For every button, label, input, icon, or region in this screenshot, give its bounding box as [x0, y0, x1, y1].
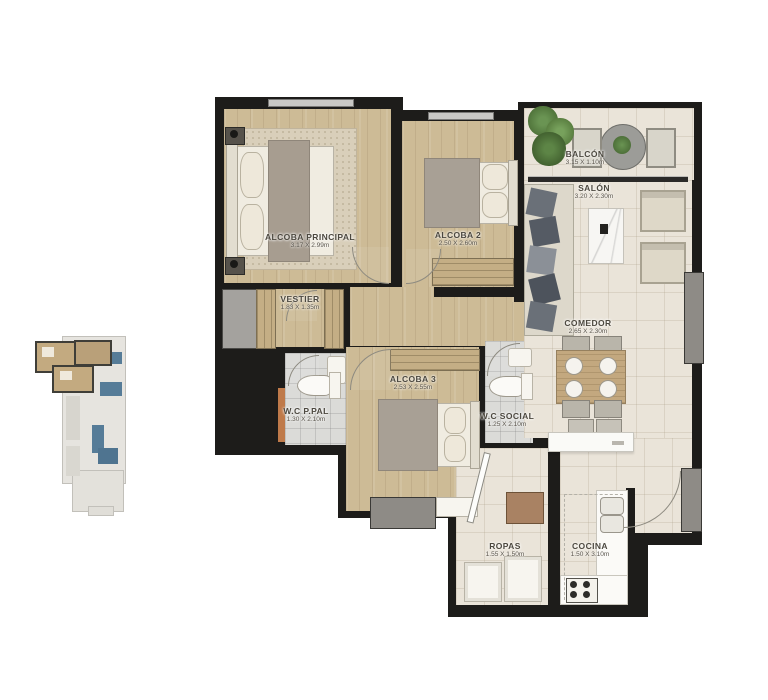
room-label-salon: SALÓN 3.20 X 2.30m: [575, 183, 614, 201]
wardrobe-alcoba-3: [370, 497, 436, 529]
sofa-cushion: [529, 216, 560, 247]
room-label-alcoba-3: ALCOBA 3 2.53 X 2.55m: [390, 374, 436, 392]
toilet-tank: [329, 372, 341, 399]
bed-3-blanket: [378, 399, 438, 471]
room-label-balcon: BALCÓN 3.15 X 1.10m: [566, 149, 605, 167]
room-name: SALÓN: [578, 183, 610, 193]
sofa-cushion: [525, 187, 557, 219]
plate: [599, 380, 617, 398]
closet-vestier-right: [324, 289, 344, 349]
room-name: W.C P.PAL: [283, 406, 328, 416]
pillow: [482, 164, 508, 190]
ropas-shelf: [506, 492, 544, 524]
bed-2-blanket: [424, 158, 480, 228]
room-dims: 1.55 X 1.50m: [486, 551, 525, 559]
pillow: [240, 204, 264, 250]
wall-alcoba2-bottom: [434, 287, 514, 297]
room-label-alcoba-principal: ALCOBA PRINCIPAL 3.17 X 2.99m: [265, 232, 355, 250]
pillow: [482, 192, 508, 218]
stove-burner: [570, 581, 577, 588]
bed-principal-headboard: [226, 144, 238, 258]
room-name: COCINA: [572, 541, 608, 551]
floor-duct: [222, 289, 258, 349]
dryer: [504, 556, 542, 602]
closet-alcoba-2: [432, 258, 514, 286]
pillow: [240, 152, 264, 198]
main-floor-plan: ALCOBA PRINCIPAL 3.17 X 2.99m ALCOBA 2 2…: [0, 0, 768, 700]
room-dims: 2.65 X 2.30m: [569, 328, 608, 336]
room-dims: 3.17 X 2.99m: [291, 242, 330, 250]
sofa-cushion: [526, 301, 557, 332]
room-dims: 2.53 X 2.55m: [394, 384, 433, 392]
kitchen-sink: [600, 497, 624, 515]
plate: [565, 357, 583, 375]
pillow: [444, 407, 466, 434]
stove-burner: [583, 591, 590, 598]
plate: [599, 357, 617, 375]
bed-3-headboard: [470, 401, 480, 469]
room-label-alcoba-2: ALCOBA 2 2.50 X 2.60m: [435, 230, 481, 248]
window-alcoba-principal: [268, 99, 354, 107]
entry-door-leaf: [681, 468, 702, 532]
room-name: ALCOBA PRINCIPAL: [265, 232, 355, 242]
room-dims: 1.25 X 2.10m: [488, 421, 527, 429]
breakfast-bar-tag: [612, 441, 624, 445]
room-dims: 3.20 X 2.30m: [575, 193, 614, 201]
bed-2-headboard: [508, 160, 518, 226]
room-name: BALCÓN: [566, 149, 605, 159]
floorplan-page: { "plan": { "title": "apartment-floor-pl…: [0, 0, 768, 700]
room-label-ropas: ROPAS 1.55 X 1.50m: [486, 541, 525, 559]
sofa-cushion: [526, 245, 556, 275]
room-name: W.C SOCIAL: [480, 411, 535, 421]
room-dims: 1.50 X 3.10m: [571, 551, 610, 559]
room-dims: 2.50 X 2.60m: [439, 240, 478, 248]
room-label-wc-principal: W.C P.PAL 1.30 X 2.10m: [283, 406, 328, 424]
dining-table: [556, 350, 626, 404]
room-name: COMEDOR: [564, 318, 611, 328]
room-name: ROPAS: [489, 541, 521, 551]
stove-burner: [583, 581, 590, 588]
toilet-tank: [521, 373, 533, 400]
plant: [532, 132, 566, 166]
dining-chair: [562, 400, 590, 418]
sliding-door-balcon: [528, 176, 688, 182]
room-dims: 1.30 X 2.10m: [287, 416, 326, 424]
stove-burner: [570, 591, 577, 598]
washer: [464, 562, 502, 602]
nightstand-lamp: [230, 260, 238, 268]
room-dims: 3.15 X 1.10m: [566, 159, 605, 167]
plate: [565, 380, 583, 398]
armchair: [640, 190, 686, 232]
room-name: ALCOBA 3: [390, 374, 436, 384]
coffee-table: [588, 208, 624, 264]
kitchen-sink: [600, 515, 624, 533]
armchair: [640, 242, 686, 284]
column-east: [684, 272, 704, 364]
room-name: ALCOBA 2: [435, 230, 481, 240]
room-label-cocina: COCINA 1.50 X 3.10m: [571, 541, 610, 559]
room-name: VESTIER: [280, 294, 319, 304]
room-dims: 1.83 X 1.35m: [281, 304, 320, 312]
balcony-table-plant: [613, 136, 631, 154]
toilet: [489, 376, 523, 397]
balcony-chair: [646, 128, 676, 168]
room-label-vestier: VESTIER 1.83 X 1.35m: [280, 294, 319, 312]
nightstand-lamp: [230, 130, 238, 138]
room-label-comedor: COMEDOR 2.65 X 2.30m: [564, 318, 611, 336]
pillow: [444, 435, 466, 462]
dining-chair: [594, 400, 622, 418]
window-alcoba-2: [428, 112, 494, 120]
coffee-table-decor: [600, 224, 608, 234]
closet-alcoba-3: [390, 349, 480, 371]
closet-vestier-left: [256, 289, 276, 349]
room-label-wc-social: W.C SOCIAL 1.25 X 2.10m: [480, 411, 535, 429]
